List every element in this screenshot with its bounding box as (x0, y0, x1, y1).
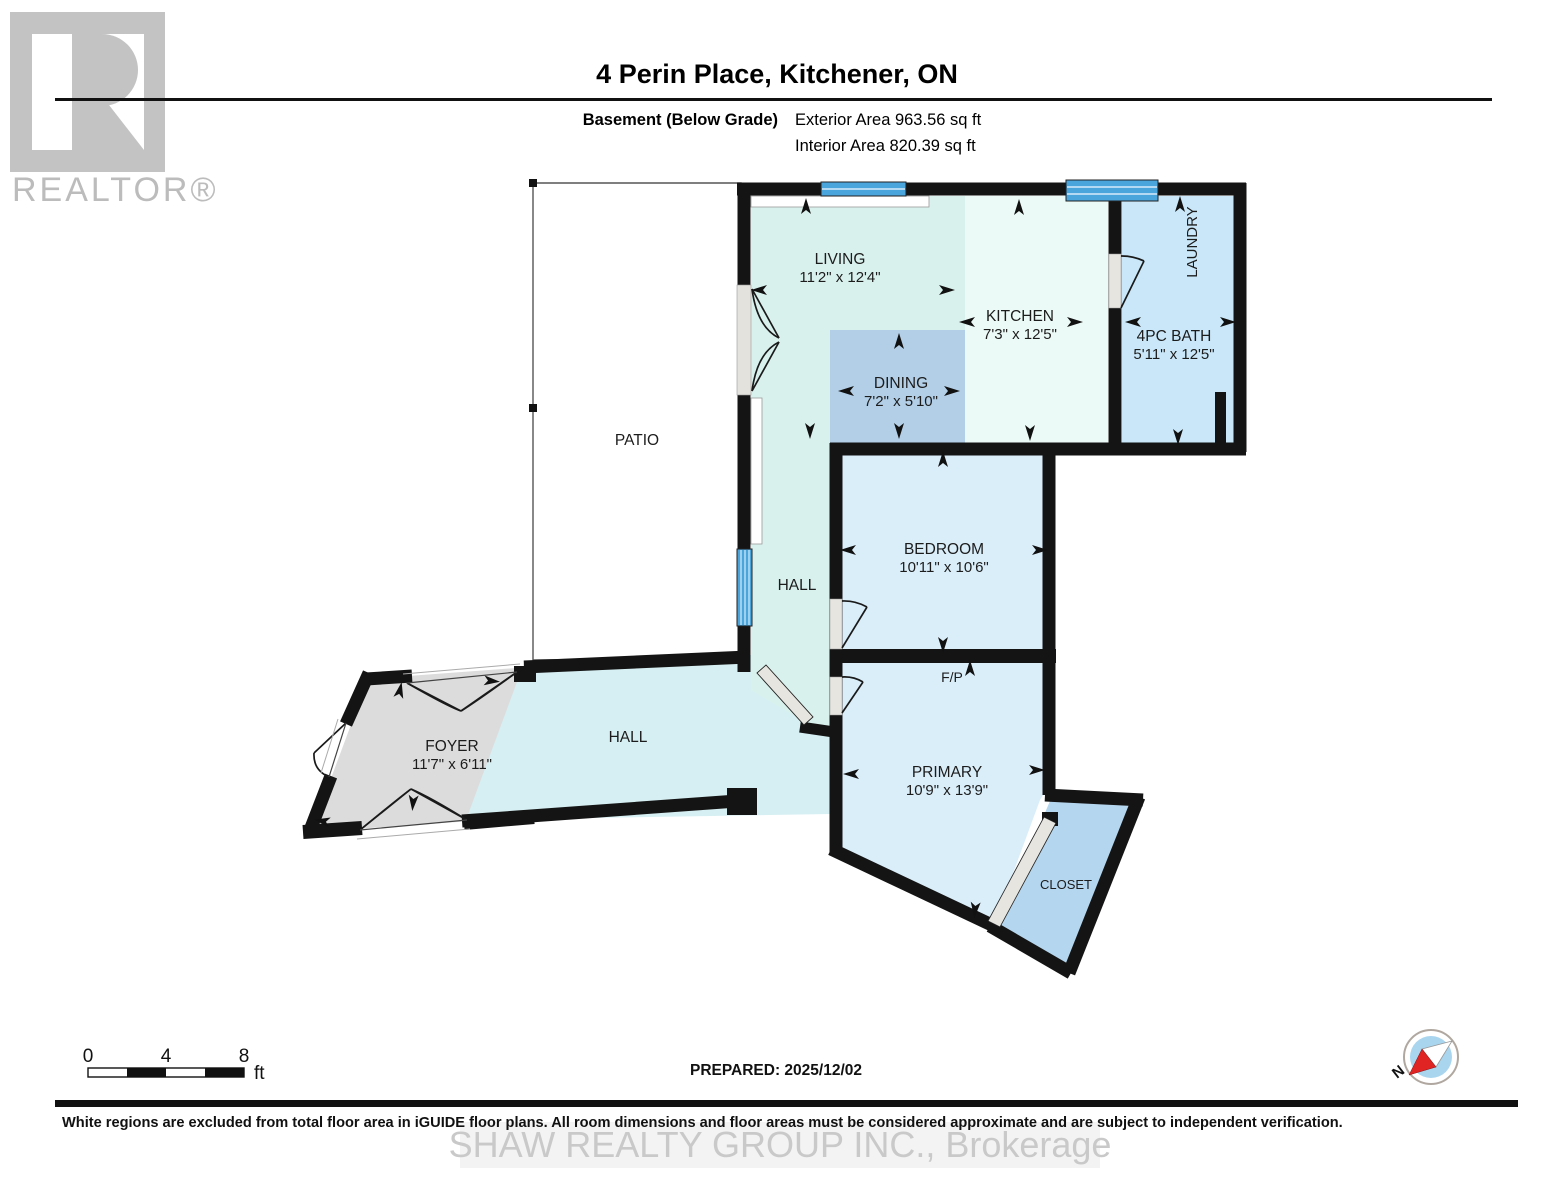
patio-region (529, 179, 741, 660)
foyer-corner-block (514, 666, 536, 682)
room-dims-bath: 5'11" x 12'5" (1133, 346, 1214, 363)
room-label-dining: DINING (874, 375, 928, 392)
scale-tick-8: 8 (239, 1046, 250, 1067)
room-fills (311, 196, 1234, 970)
scale-bar: 0 4 8 ft (83, 1046, 266, 1084)
exterior-area-label: Exterior Area 963.56 sq ft (795, 111, 982, 129)
compass-icon: N (1389, 1030, 1458, 1084)
page-title: 4 Perin Place, Kitchener, ON (596, 59, 958, 89)
floor-label: Basement (Below Grade) (583, 111, 778, 129)
room-label-living: LIVING (815, 251, 866, 268)
room-dims-primary: 10'9" x 13'9" (906, 782, 988, 799)
room-dims-foyer: 11'7" x 6'11" (412, 756, 492, 773)
kitchen-window (1066, 180, 1158, 201)
room-label-bedroom: BEDROOM (904, 541, 984, 558)
room-dims-dining: 7'2" x 5'10" (864, 393, 938, 410)
scale-tick-0: 0 (83, 1046, 94, 1067)
room-label-patio: PATIO (615, 432, 659, 449)
room-dims-kitchen: 7'3" x 12'5" (983, 326, 1057, 343)
room-dims-bedroom: 10'11" x 10'6" (899, 559, 989, 576)
wall-jog-block (727, 788, 757, 815)
interior-area-label: Interior Area 820.39 sq ft (795, 137, 976, 155)
floor-plan-canvas: REALTOR® 4 Perin Place, Kitchener, ON Ba… (0, 0, 1553, 1200)
living-sill (751, 196, 929, 207)
room-label-hall-upper: HALL (778, 577, 817, 594)
patio-edge-tick (529, 404, 537, 412)
footer-divider (55, 1100, 1518, 1107)
room-label-foyer: FOYER (425, 738, 478, 755)
room-label-closet: CLOSET (1040, 877, 1092, 892)
hall-sill (751, 398, 762, 544)
bath-stub-wall (1215, 392, 1226, 449)
floor-plan-page: REALTOR® 4 Perin Place, Kitchener, ON Ba… (0, 0, 1553, 1200)
footer-disclaimer: White regions are excluded from total fl… (62, 1115, 1343, 1131)
scale-unit-label: ft (254, 1063, 265, 1084)
realtor-logo-icon: REALTOR® (10, 12, 219, 209)
room-label-kitchen: KITCHEN (986, 308, 1054, 325)
prepared-date-label: PREPARED: 2025/12/02 (690, 1062, 862, 1079)
scale-tick-4: 4 (161, 1046, 172, 1067)
realtor-logo-text: REALTOR® (12, 171, 219, 209)
patio-corner-tick (529, 179, 537, 187)
room-dims-living: 11'2" x 12'4" (799, 269, 880, 286)
room-label-hall-main: HALL (609, 729, 648, 746)
fireplace-label: F/P (941, 669, 963, 685)
room-label-laundry: LAUNDRY (1184, 206, 1201, 277)
title-divider (55, 98, 1492, 101)
room-label-primary: PRIMARY (912, 764, 982, 781)
room-label-bath: 4PC BATH (1137, 328, 1212, 345)
